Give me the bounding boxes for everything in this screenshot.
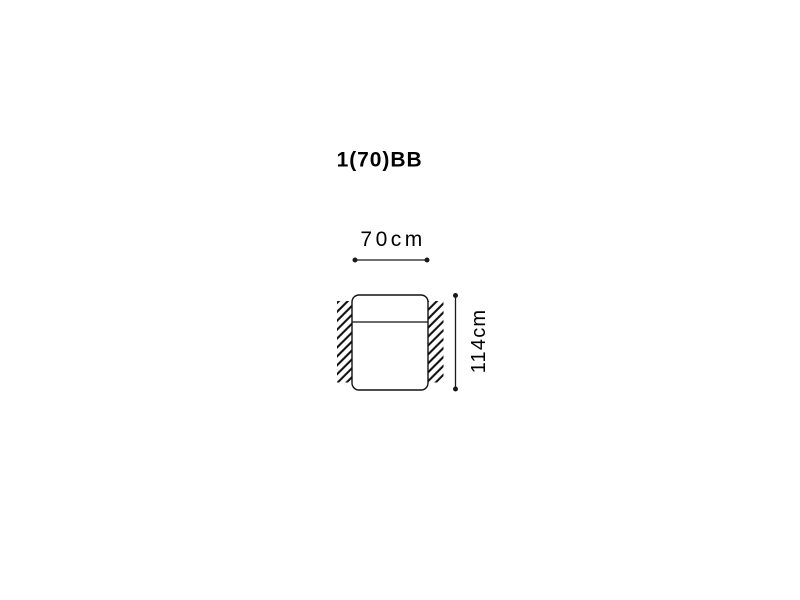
svg-text:1(70)BB: 1(70)BB [337,149,423,172]
svg-text:70cm: 70cm [360,228,425,251]
svg-text:114cm: 114cm [468,309,490,374]
